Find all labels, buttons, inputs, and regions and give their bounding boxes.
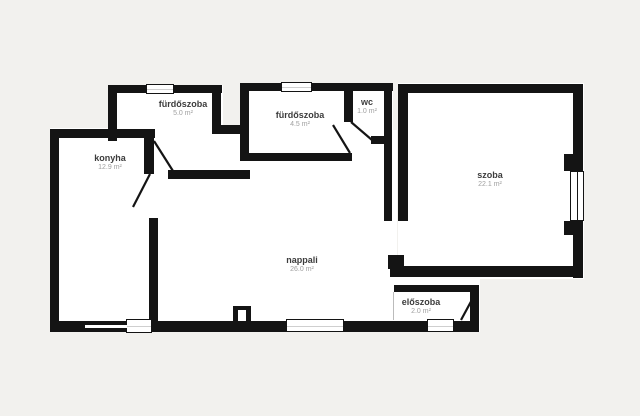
- door-swing-furdoszoba-1: [154, 141, 173, 171]
- door-swing-konyha: [133, 174, 150, 207]
- door-swing-entrance: [461, 296, 474, 320]
- floor-plan: fürdőszoba 5.0 m² konyha 12.9 m² fürdősz…: [0, 0, 640, 416]
- door-swing-lines: [0, 0, 640, 416]
- door-swing-furdoszoba-2: [333, 125, 350, 153]
- door-swing-wc: [351, 122, 372, 140]
